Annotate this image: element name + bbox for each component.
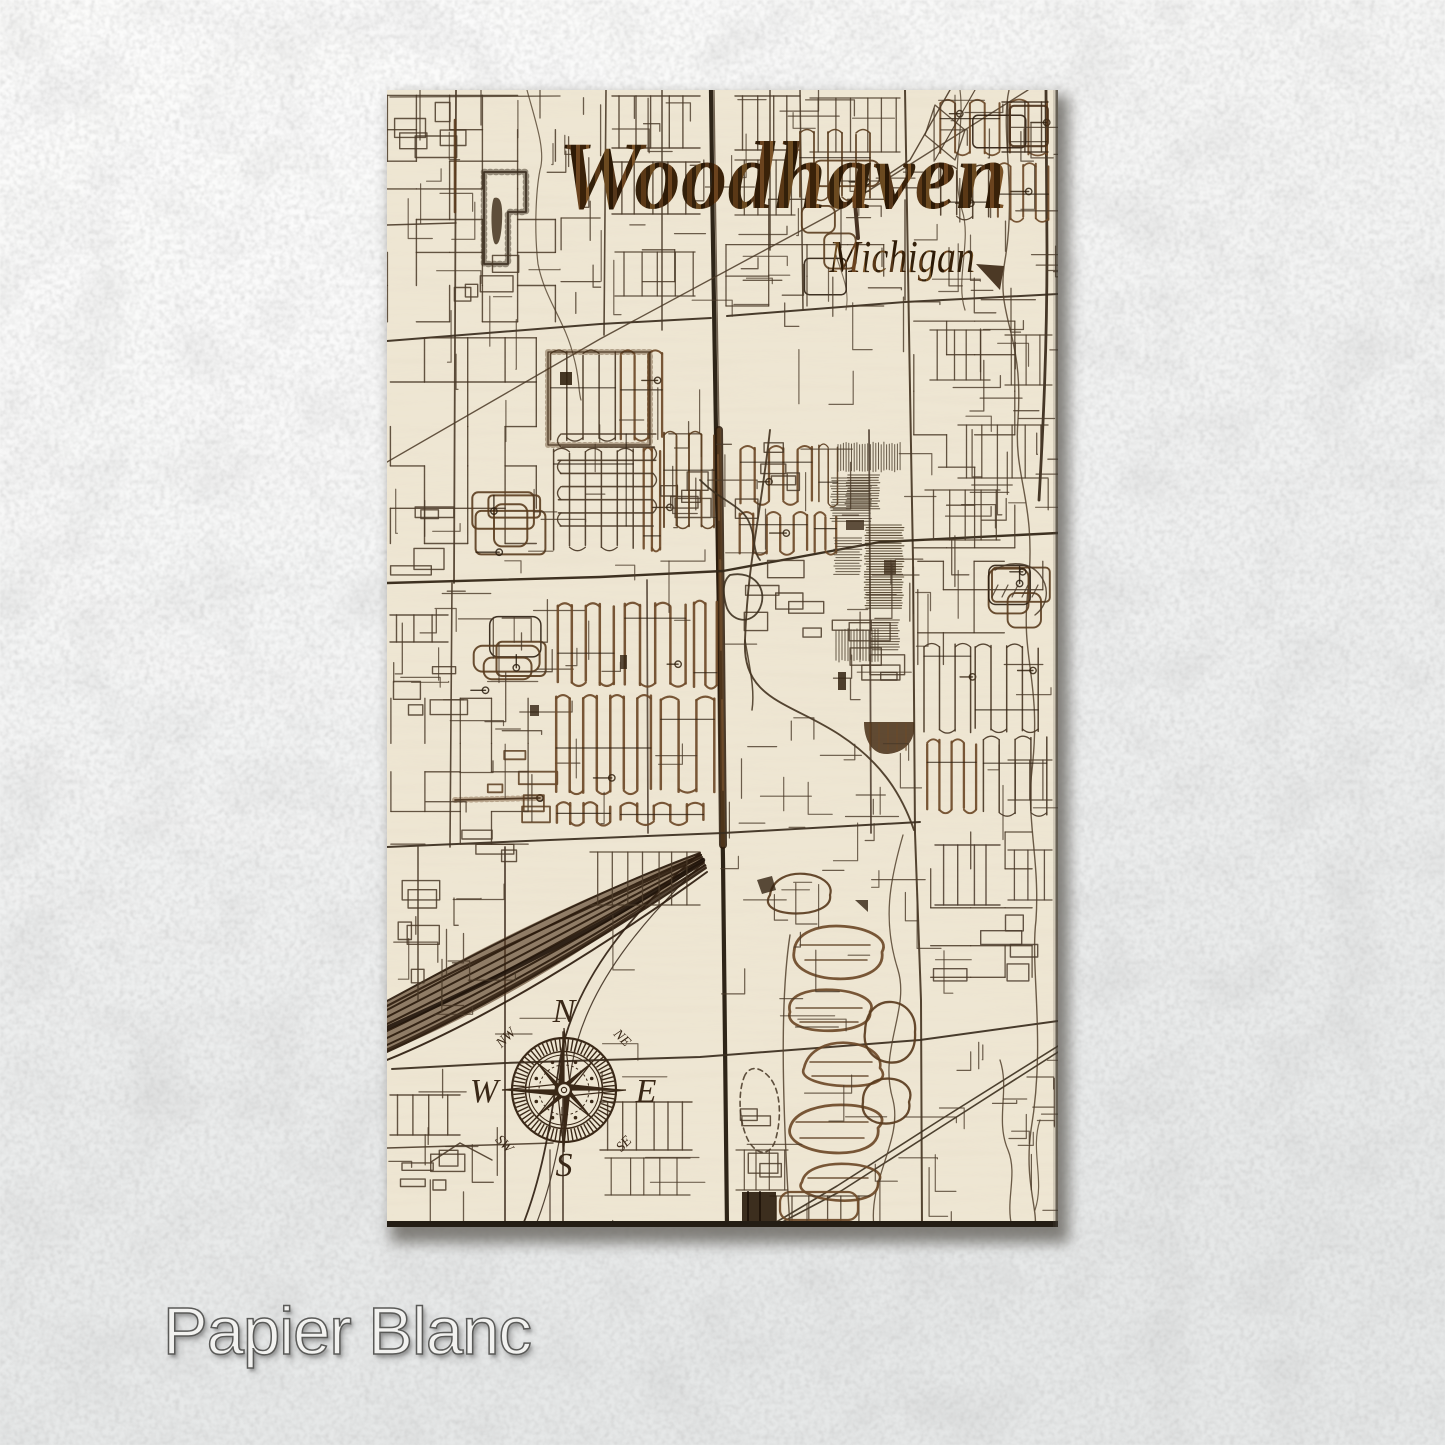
svg-text:W: W — [470, 1073, 501, 1110]
svg-text:Woodhaven: Woodhaven — [558, 122, 1008, 229]
svg-text:Michigan: Michigan — [828, 231, 975, 282]
svg-text:E: E — [635, 1073, 657, 1110]
svg-text:N: N — [552, 993, 578, 1030]
svg-text:S: S — [556, 1147, 573, 1184]
